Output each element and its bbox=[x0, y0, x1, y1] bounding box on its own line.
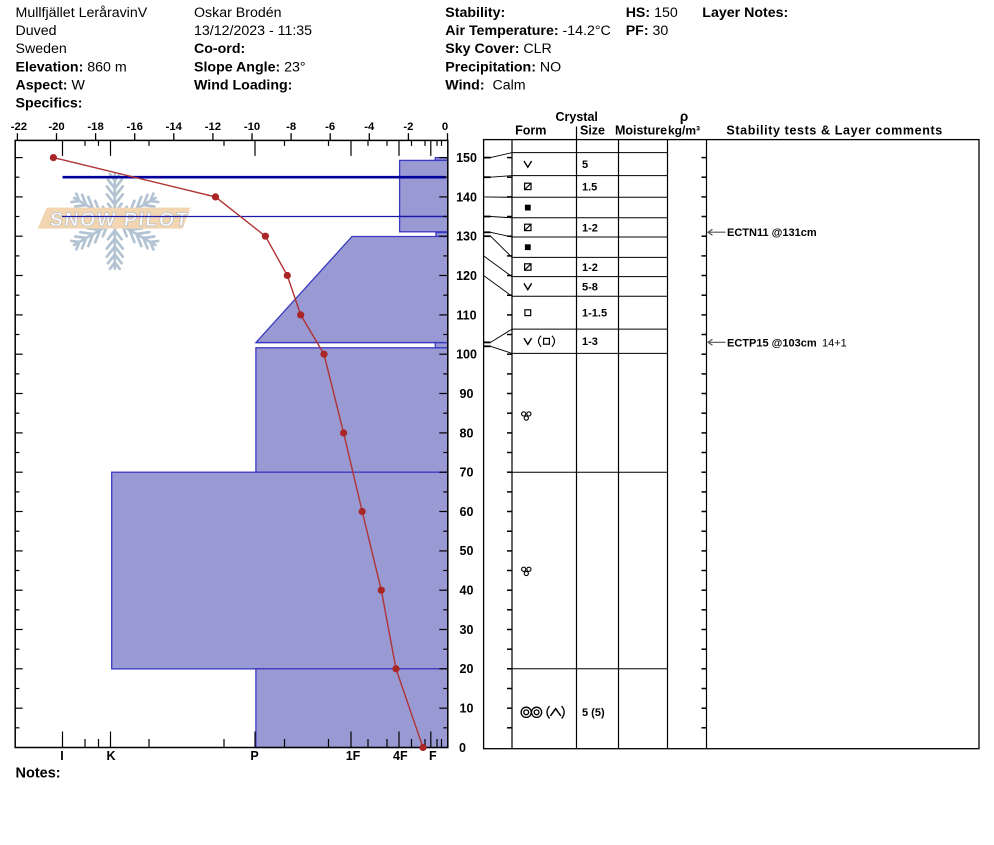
svg-text:10: 10 bbox=[460, 702, 474, 716]
svg-text:kg/m³: kg/m³ bbox=[668, 124, 700, 138]
svg-text:Notes:: Notes: bbox=[16, 766, 61, 782]
svg-text:1-3: 1-3 bbox=[582, 336, 598, 348]
svg-text:Wind: Calm: Wind: Calm bbox=[445, 77, 525, 93]
svg-text:Layer Notes:: Layer Notes: bbox=[702, 5, 788, 21]
svg-text:20: 20 bbox=[460, 662, 474, 676]
svg-text:50: 50 bbox=[460, 544, 474, 558]
svg-text:PF: 30: PF: 30 bbox=[626, 23, 669, 39]
svg-text:-22: -22 bbox=[11, 121, 27, 133]
svg-text:130: 130 bbox=[456, 230, 477, 244]
svg-text:0: 0 bbox=[442, 121, 448, 133]
svg-text:F: F bbox=[429, 749, 437, 763]
svg-text:Mullfjället LeråravinV: Mullfjället LeråravinV bbox=[16, 5, 148, 21]
svg-text:140: 140 bbox=[456, 190, 477, 204]
svg-text:P: P bbox=[250, 749, 258, 763]
svg-text:1-2: 1-2 bbox=[582, 262, 598, 274]
svg-text:Oskar Brodén: Oskar Brodén bbox=[194, 5, 282, 21]
svg-text:-20: -20 bbox=[48, 121, 64, 133]
svg-text:Wind Loading:: Wind Loading: bbox=[194, 77, 292, 93]
svg-text:70: 70 bbox=[460, 466, 474, 480]
svg-text:Stability:: Stability: bbox=[445, 5, 505, 21]
svg-text:Moisture: Moisture bbox=[615, 124, 667, 138]
svg-text:Stability tests & Layer commen: Stability tests & Layer comments bbox=[726, 124, 942, 138]
svg-text:5-8: 5-8 bbox=[582, 281, 598, 293]
svg-text:14+1: 14+1 bbox=[822, 337, 847, 349]
svg-text:30: 30 bbox=[460, 623, 474, 637]
svg-text:80: 80 bbox=[460, 426, 474, 440]
svg-text:Form: Form bbox=[515, 124, 546, 138]
svg-text:Aspect: W: Aspect: W bbox=[16, 77, 86, 93]
svg-text:5 (5): 5 (5) bbox=[582, 707, 605, 719]
svg-text:SNOW PILOT: SNOW PILOT bbox=[49, 209, 191, 231]
svg-text:-4: -4 bbox=[364, 121, 375, 133]
svg-text:Sky Cover: CLR: Sky Cover: CLR bbox=[445, 41, 551, 57]
svg-text:120: 120 bbox=[456, 269, 477, 283]
svg-text:1F: 1F bbox=[346, 749, 361, 763]
svg-text:4F: 4F bbox=[393, 749, 408, 763]
svg-text:100: 100 bbox=[456, 348, 477, 362]
svg-text:I: I bbox=[60, 749, 63, 763]
svg-text:1.5: 1.5 bbox=[582, 181, 597, 193]
svg-text:Elevation: 860 m: Elevation: 860 m bbox=[16, 59, 127, 75]
svg-text:Sweden: Sweden bbox=[16, 41, 67, 57]
svg-text:Size: Size bbox=[580, 124, 605, 138]
svg-text:40: 40 bbox=[460, 584, 474, 598]
svg-text:Specifics:: Specifics: bbox=[16, 96, 83, 112]
svg-text:K: K bbox=[106, 749, 115, 763]
svg-text:Duved: Duved bbox=[16, 23, 57, 39]
svg-text:-8: -8 bbox=[286, 121, 296, 133]
svg-text:-12: -12 bbox=[205, 121, 221, 133]
svg-text:60: 60 bbox=[460, 505, 474, 519]
svg-text:-18: -18 bbox=[87, 121, 103, 133]
svg-text:ECTN11 @131cm: ECTN11 @131cm bbox=[727, 227, 817, 239]
svg-text:-6: -6 bbox=[325, 121, 335, 133]
svg-text:Slope Angle: 23°: Slope Angle: 23° bbox=[194, 59, 306, 75]
svg-text:-14: -14 bbox=[166, 121, 183, 133]
svg-text:Air Temperature: -14.2°C: Air Temperature: -14.2°C bbox=[445, 23, 610, 39]
svg-text:90: 90 bbox=[460, 387, 474, 401]
svg-text:1-1.5: 1-1.5 bbox=[582, 308, 607, 320]
svg-text:150: 150 bbox=[456, 151, 477, 165]
svg-text:ρ: ρ bbox=[680, 109, 688, 124]
svg-text:HS: 150: HS: 150 bbox=[626, 5, 678, 21]
svg-text:-10: -10 bbox=[244, 121, 260, 133]
svg-text:1-2: 1-2 bbox=[582, 222, 598, 234]
svg-text:Crystal: Crystal bbox=[556, 110, 598, 124]
svg-text:13/12/2023 - 11:35: 13/12/2023 - 11:35 bbox=[194, 23, 312, 39]
svg-text:5: 5 bbox=[582, 159, 588, 171]
svg-text:-2: -2 bbox=[403, 121, 413, 133]
svg-text:Co-ord:: Co-ord: bbox=[194, 41, 245, 57]
svg-text:ECTP15 @103cm: ECTP15 @103cm bbox=[727, 337, 817, 349]
svg-text:-16: -16 bbox=[127, 121, 143, 133]
svg-text:110: 110 bbox=[456, 308, 476, 322]
svg-text:Precipitation: NO: Precipitation: NO bbox=[445, 59, 561, 75]
svg-text:0: 0 bbox=[459, 741, 466, 755]
